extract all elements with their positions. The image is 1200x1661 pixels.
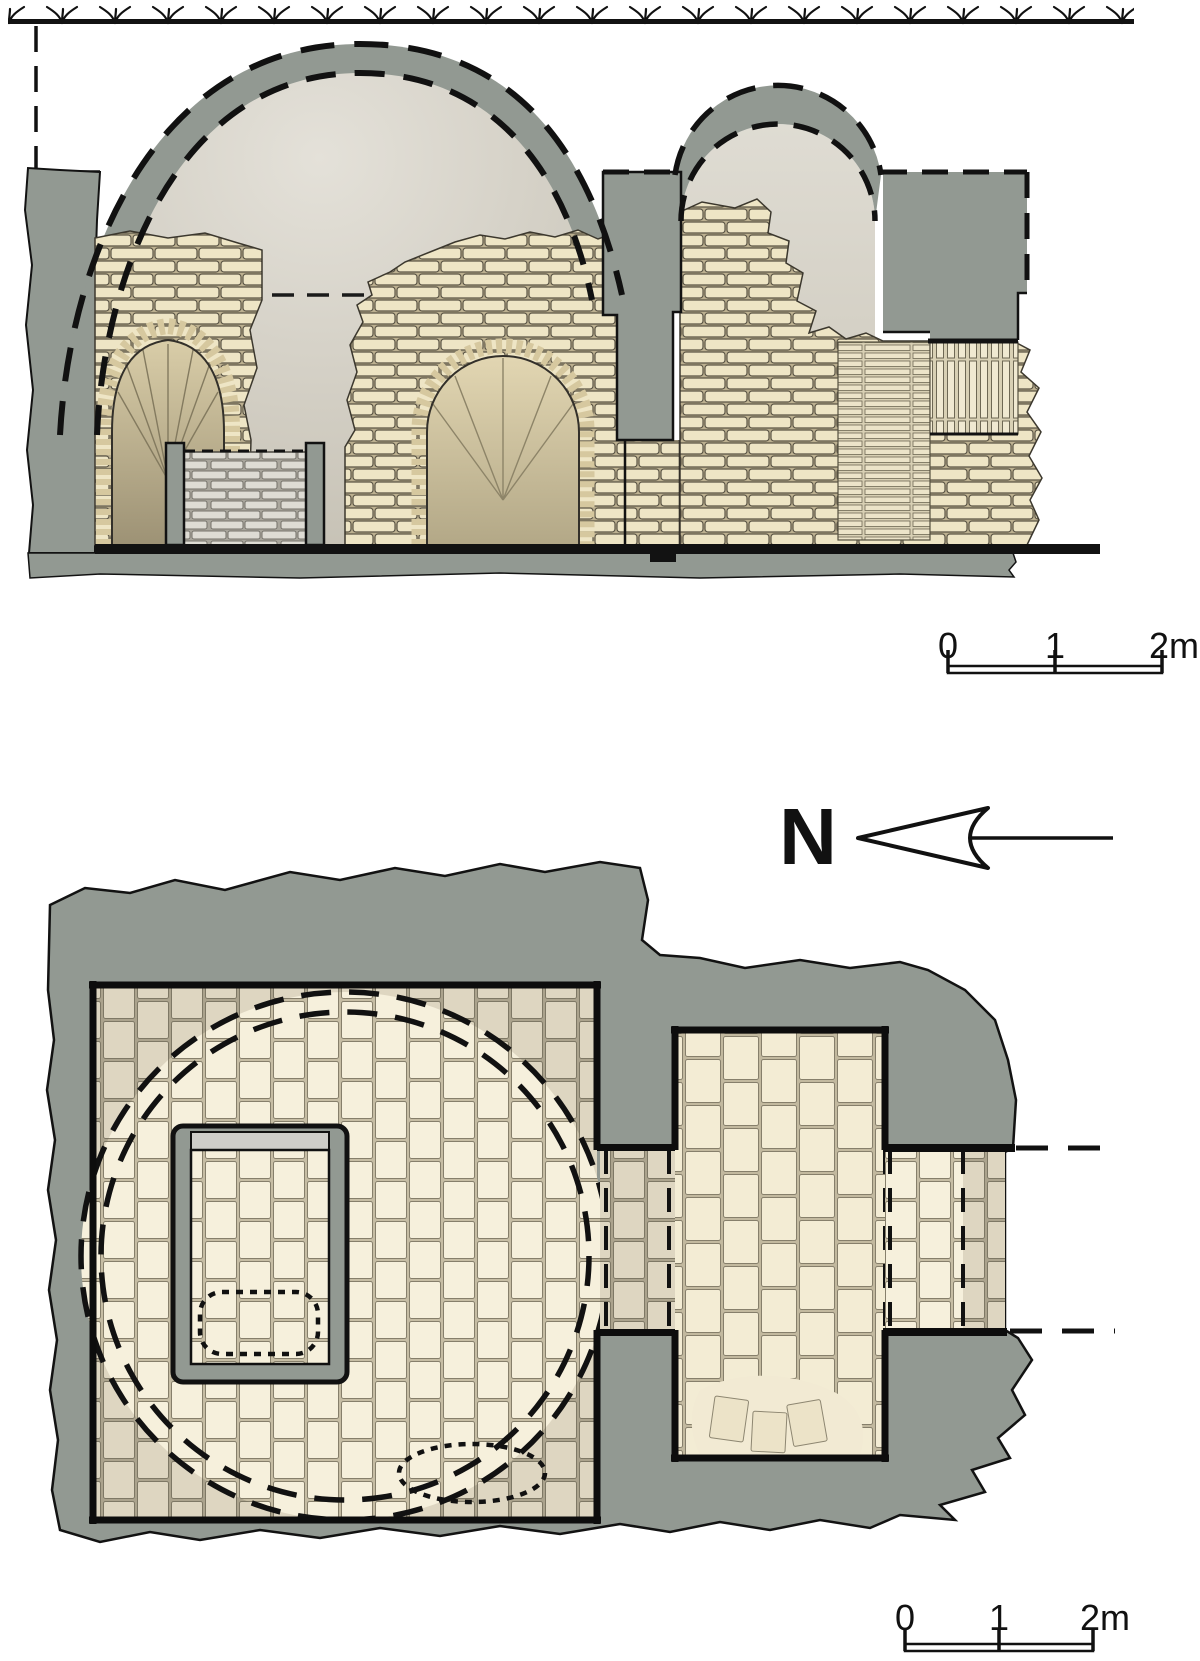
ground-line — [8, 19, 1134, 24]
floor-notch — [650, 545, 676, 562]
right-lath-niche — [930, 342, 1018, 434]
archaeological-drawing-page: 0 1 2m N — [0, 0, 1200, 1661]
section-scale-bar: 0 1 2m — [938, 625, 1199, 673]
plan-scale-label-2m: 2m — [1080, 1597, 1130, 1638]
earth-under-floor — [28, 553, 1016, 578]
right-room — [671, 1026, 889, 1462]
floor-line — [95, 544, 1100, 554]
north-label: N — [779, 792, 837, 881]
plan-scale-bar: 0 1 2m — [895, 1597, 1130, 1651]
grave-plan — [173, 1126, 347, 1382]
scale-label-2m: 2m — [1149, 625, 1199, 666]
drawing-svg: 0 1 2m N — [0, 0, 1200, 1661]
right-lath-band — [838, 342, 930, 540]
east-corridor — [883, 1144, 1015, 1336]
vault-right-pier — [883, 172, 1027, 340]
doorway-west — [597, 1144, 675, 1336]
north-arrow-head — [858, 808, 988, 868]
section-drawing: 0 1 2m — [8, 0, 1199, 673]
doorway-slot — [625, 440, 680, 545]
plan-drawing: 0 1 2m — [47, 862, 1130, 1651]
grave-section — [166, 443, 324, 545]
north-arrow-icon: N — [779, 792, 1113, 881]
